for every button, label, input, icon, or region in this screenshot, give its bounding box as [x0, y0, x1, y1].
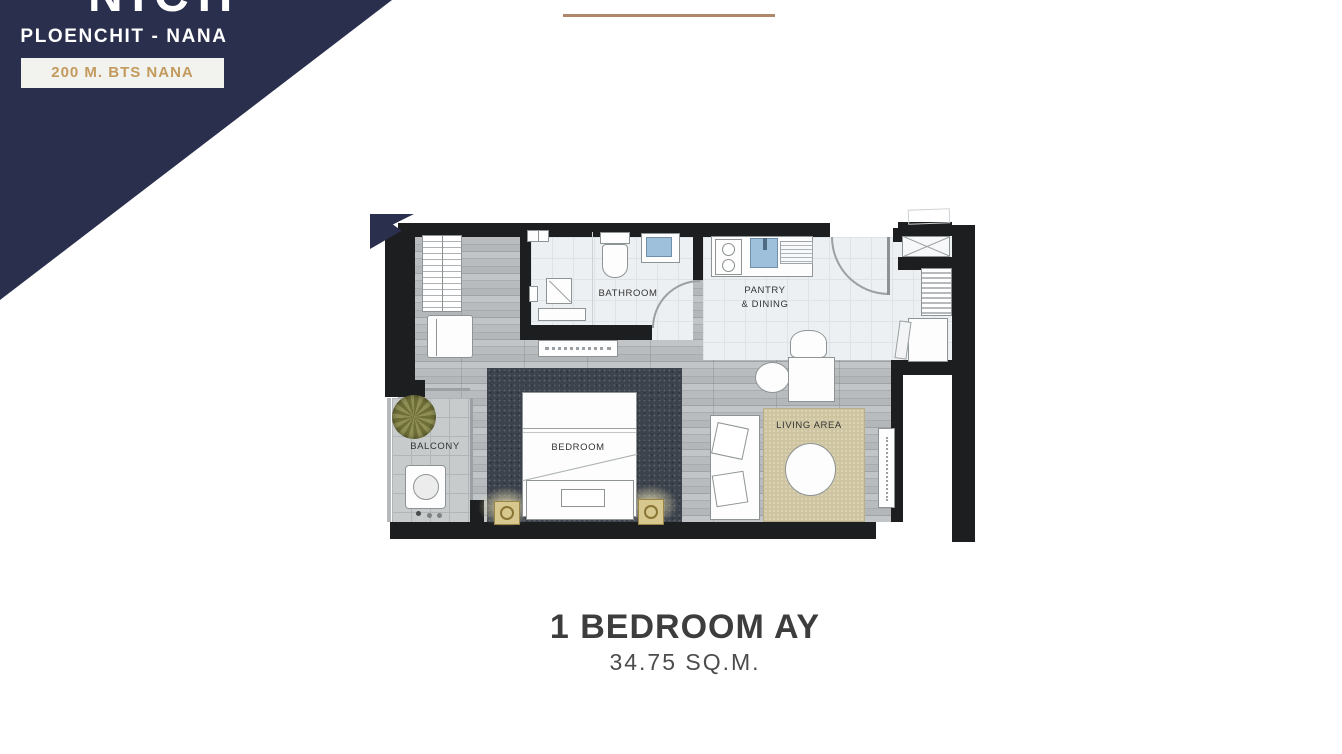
- sofa-cushion: [712, 471, 749, 508]
- pantry-label-2: & DINING: [712, 299, 818, 310]
- pantry-label: PANTRY: [715, 285, 815, 296]
- brand-corner-triangle: NICH PLOENCHIT - NANA 200 M. BTS NANA: [0, 0, 392, 300]
- header-divider-line: [563, 14, 775, 17]
- wall-balcony-top: [385, 380, 425, 397]
- balcony-divider: [470, 398, 473, 500]
- washbasin-icon: [646, 237, 672, 257]
- coffee-table-icon: [785, 443, 836, 496]
- toilet-icon: [602, 244, 628, 278]
- desk: [908, 318, 948, 362]
- hall-armchair: [427, 315, 473, 358]
- shoe-cabinet: [921, 268, 952, 316]
- bath-shelf: [527, 230, 549, 242]
- wall-bath-left: [520, 225, 531, 340]
- balcony-drain-dot: [416, 511, 421, 516]
- shower-tray: [546, 278, 572, 304]
- wall-left: [385, 228, 415, 380]
- shower-partition: [592, 232, 593, 325]
- bed-headboard-console: [526, 480, 634, 520]
- balcony-label: BALCONY: [400, 441, 470, 452]
- wall-sconce-right-icon: [638, 499, 664, 525]
- hall-console: [538, 340, 618, 357]
- wall-sconce-left-icon: [494, 501, 520, 525]
- toilet-tank: [600, 232, 630, 244]
- dining-table: [788, 357, 835, 402]
- bts-distance-badge: 200 M. BTS NANA: [21, 58, 224, 88]
- plant-icon: [392, 395, 436, 439]
- bedroom-label: BEDROOM: [528, 442, 628, 453]
- unit-area: 34.75 SQ.M.: [340, 649, 1030, 676]
- shower-bench: [538, 308, 586, 321]
- drainboard: [780, 241, 813, 264]
- shaft-box-icon: [902, 236, 950, 257]
- balcony-glass-wall: [387, 398, 391, 522]
- stove-icon: [715, 239, 742, 275]
- kitchen-sink-icon: [750, 238, 778, 268]
- tv-cabinet: [878, 428, 895, 508]
- living-area-label: LIVING AREA: [759, 420, 859, 431]
- bathroom-label: BATHROOM: [573, 288, 683, 299]
- washing-machine-icon: [405, 465, 446, 509]
- unit-title-block: 1 BEDROOM AY 34.75 SQ.M.: [340, 608, 1030, 676]
- balcony-sliding-door: [425, 388, 470, 391]
- balcony-drain-dot: [427, 513, 432, 518]
- ac-ledge-sketch: [908, 208, 950, 224]
- brand-logo-icon: NICH: [88, 0, 241, 23]
- dining-chair-west: [755, 362, 790, 393]
- project-name: PLOENCHIT - NANA: [18, 26, 230, 48]
- sofa-cushion: [711, 422, 749, 460]
- dining-chair-north: [790, 330, 827, 358]
- floor-plan: BATHROOM PANTRY & DINING BEDR: [370, 205, 995, 555]
- page: NICH PLOENCHIT - NANA 200 M. BTS NANA: [0, 0, 1342, 754]
- unit-name: 1 BEDROOM AY: [340, 608, 1030, 647]
- wardrobe: [422, 235, 462, 312]
- wall-right: [952, 225, 975, 542]
- balcony-drain-dot: [437, 513, 442, 518]
- wall-bath-bottom: [520, 325, 652, 340]
- entry-door-leaf: [887, 237, 890, 295]
- wall-bath-right: [693, 225, 703, 280]
- shower-mixer: [529, 286, 538, 302]
